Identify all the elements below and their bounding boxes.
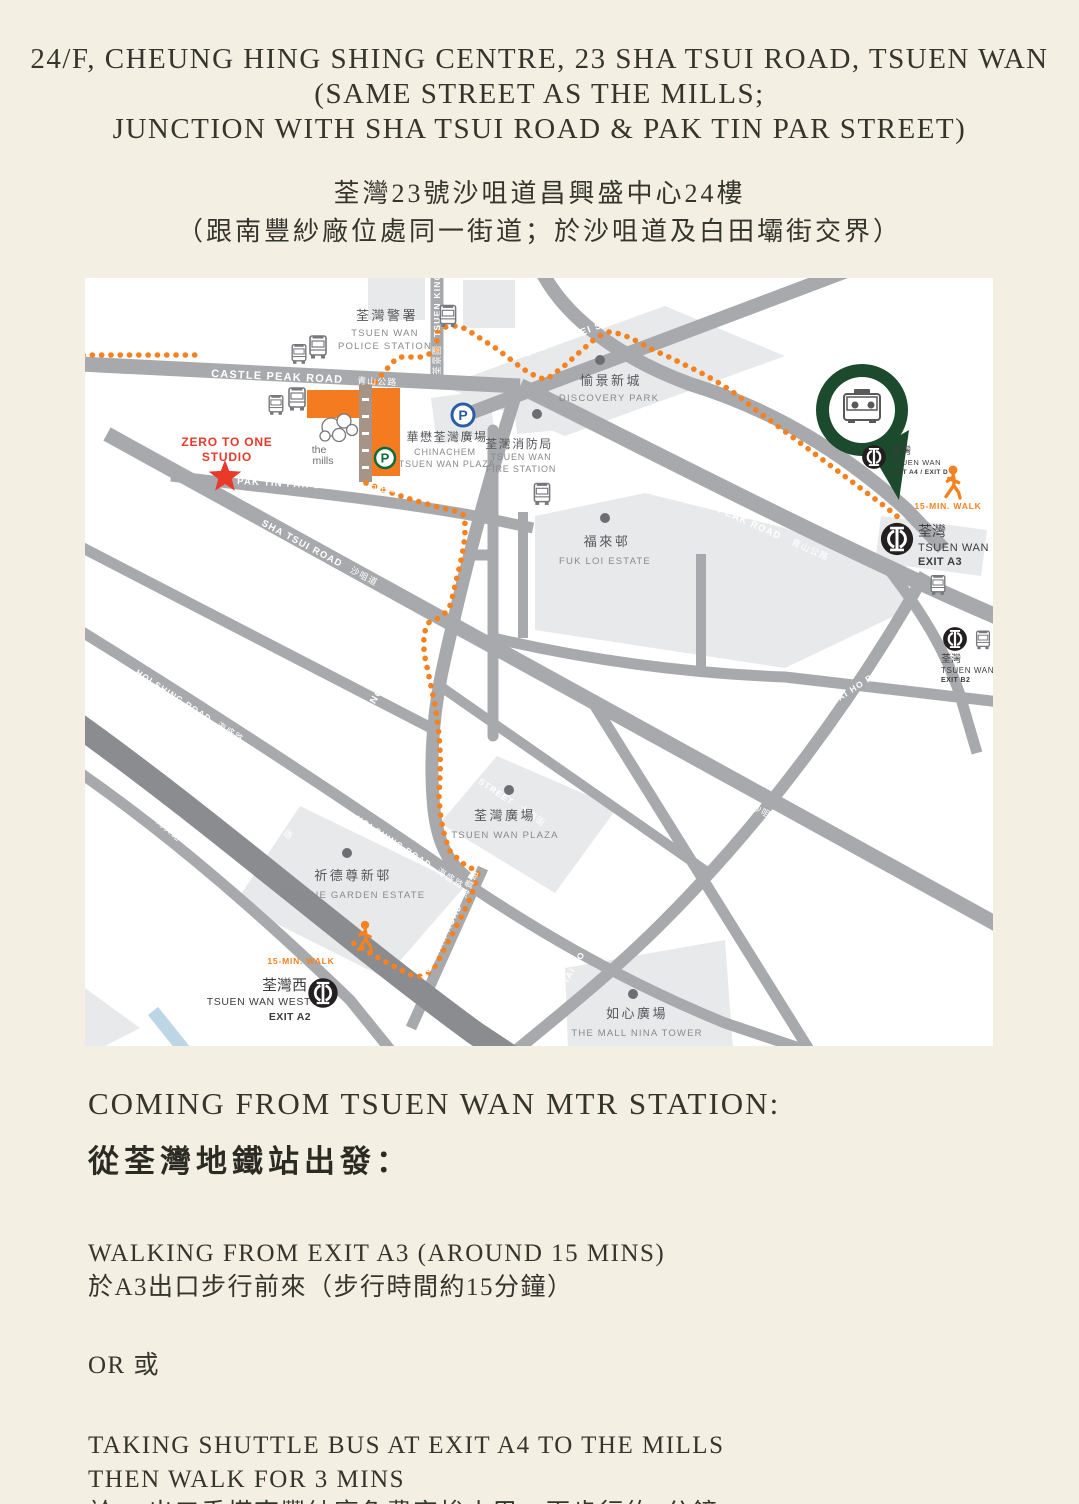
label-chai-wan-kok: CHAI WAN KOK STREET柴灣角街: [170, 579, 327, 666]
chinachem-label-en1: CHINACHEM: [414, 447, 476, 457]
option1-zh: 於A3出口步行前來（步行時間約15分鐘）: [88, 1271, 1008, 1305]
option2-en-line2: THEN WALK FOR 3 MINS: [88, 1463, 1008, 1497]
nina-tower-label-en: THE MALL NINA TOWER: [571, 1028, 702, 1039]
clague-garden-dot: [342, 848, 352, 858]
station-a3-zh: 荃灣: [918, 523, 946, 539]
label-hoi-shing-1: HOI SHING ROAD海盛路: [134, 666, 246, 744]
directions-heading-zh: 從荃灣地鐵站出發：: [88, 1136, 1008, 1181]
address-header: 24/F, CHEUNG HING SHING CENTRE, 23 SHA T…: [0, 42, 1079, 251]
station-a4-en: TSUEN WAN: [891, 458, 941, 467]
fire-station-dot: [532, 409, 542, 419]
station-b2-en: TSUEN WAN: [941, 666, 993, 675]
location-map: CASTLE PEAK ROAD青山公路 CASTLE PEAK ROAD青山公…: [85, 278, 993, 1046]
corner-block: [85, 988, 140, 1046]
clague-garden-label-en: CLAGUE GARDEN ESTATE: [281, 890, 426, 901]
mtr-icon: [308, 978, 337, 1007]
map-canvas: CASTLE PEAK ROAD青山公路 CASTLE PEAK ROAD青山公…: [85, 278, 993, 1046]
fire-station-label-en1: TSUEN WAN: [491, 452, 552, 462]
bus-icon: [977, 631, 990, 649]
tsuen-wan-plaza-label-en: TSUEN WAN PLAZA: [451, 830, 558, 841]
option2-en-line1: TAKING SHUTTLE BUS AT EXIT A4 TO THE MIL…: [88, 1429, 1008, 1463]
bus-icon: [289, 388, 305, 411]
fuk-loi-dot: [600, 513, 610, 523]
address-line-2: (SAME STREET AS THE MILLS;: [0, 77, 1079, 112]
discovery-park-label-zh: 愉景新城: [580, 373, 642, 388]
mtr-icon: [943, 627, 967, 651]
walk-badge-2: 15-MIN. WALK: [267, 956, 334, 966]
tsuen-wan-plaza-dot: [504, 785, 514, 795]
nina-tower-label-zh: 如心廣場: [606, 1006, 668, 1021]
station-b2-exit: EXIT B2: [941, 677, 970, 684]
police-station-label-en2: POLICE STATION: [338, 341, 432, 352]
block-northeast: [463, 280, 515, 328]
address-zh-line-2: （跟南豐紗廠位處同一街道；於沙咀道及白田壩街交界）: [0, 213, 1079, 251]
mills-building-west: [307, 390, 360, 418]
label-tsuen-king-cir: 荃景圍TSUEN KING CIR.: [431, 278, 442, 375]
mtr-icon: [881, 523, 913, 555]
waterway: [153, 1011, 197, 1046]
police-station-label-zh: 荃灣警署: [356, 308, 418, 323]
station-a4-zh: 荃灣: [891, 444, 911, 457]
flyer-page: 24/F, CHEUNG HING SHING CENTRE, 23 SHA T…: [0, 0, 1079, 1504]
directions-section: COMING FROM TSUEN WAN MTR STATION: 從荃灣地鐵…: [88, 1086, 1008, 1504]
station-a3-en: TSUEN WAN: [918, 542, 989, 554]
label-tai-chung: TAI CHUNG ROAD大涌道: [343, 620, 425, 746]
station-a3-exit: EXIT A3: [918, 556, 962, 568]
minibus-icon: [844, 389, 880, 423]
nina-tower-dot: [628, 989, 638, 999]
chinachem-label-zh: 華懋荃灣廣場: [406, 429, 487, 444]
or-label: OR 或: [88, 1349, 1008, 1383]
parking-letter-green: P: [381, 451, 390, 466]
discovery-park-label-en: DISCOVERY PARK: [559, 393, 659, 404]
studio-label-line1: ZERO TO ONE: [181, 435, 272, 449]
fuk-loi-block: [535, 493, 911, 668]
address-line-1: 24/F, CHEUNG HING SHING CENTRE, 23 SHA T…: [0, 42, 1079, 77]
station-west-en: TSUEN WAN WEST: [207, 996, 311, 1008]
chinachem-label-en2: TSUEN WAN PLAZA: [399, 459, 496, 469]
fuk-loi-label-en: FUK LOI ESTATE: [559, 556, 651, 567]
bus-icon: [931, 575, 945, 595]
discovery-park-dot: [595, 355, 605, 365]
clague-garden-label-zh: 祈德尊新邨: [314, 868, 392, 883]
parking-letter-blue: P: [458, 407, 467, 423]
bus-icon: [534, 483, 549, 505]
address-zh-line-1: 荃灣23號沙咀道昌興盛中心24樓: [0, 175, 1079, 213]
option1-en: WALKING FROM EXIT A3 (AROUND 15 MINS): [88, 1237, 1008, 1271]
mills-logo-line2: mills: [313, 455, 334, 467]
road-chai-wan-kok: [85, 546, 435, 730]
fire-station-label-en2: FIRE STATION: [486, 464, 556, 474]
mtr-icon: [862, 445, 886, 469]
bus-icon: [310, 336, 326, 359]
station-west-exit: EXIT A2: [269, 1011, 311, 1023]
label-sha-tsui-1: SHA TSUI ROAD沙咀道: [260, 517, 381, 589]
station-a4-exit: EXIT A4 / EXIT D: [891, 469, 948, 476]
walker-icon: [946, 466, 960, 498]
tsuen-wan-plaza-label-zh: 荃灣廣場: [474, 808, 536, 823]
police-station-label-en1: TSUEN WAN: [351, 328, 418, 339]
walk-badge-1: 15-MIN. WALK: [914, 501, 981, 511]
station-west-zh: 荃灣西: [262, 977, 307, 994]
address-line-3: JUNCTION WITH SHA TSUI ROAD & PAK TIN PA…: [0, 112, 1079, 147]
mills-logo: the mills: [312, 414, 358, 467]
bus-icon: [269, 395, 283, 415]
option2-zh: 於A4出口乘搭南豐紗廠免費穿梭小巴，再步行約3分鐘: [88, 1497, 1008, 1504]
bus-icon: [440, 305, 455, 327]
bus-icon: [292, 344, 306, 364]
fire-station-label-zh: 荃灣消防局: [485, 436, 553, 451]
studio-label-line2: STUDIO: [202, 450, 252, 464]
station-b2-zh: 荃灣: [941, 652, 961, 665]
directions-heading-en: COMING FROM TSUEN WAN MTR STATION:: [88, 1086, 1008, 1122]
fuk-loi-label-zh: 福來邨: [584, 534, 631, 549]
